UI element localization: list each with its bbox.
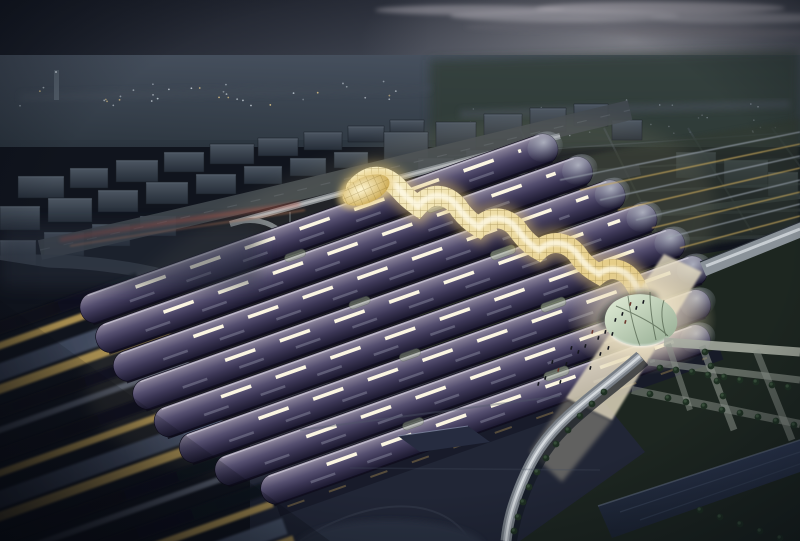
rendering-canvas (0, 0, 800, 541)
